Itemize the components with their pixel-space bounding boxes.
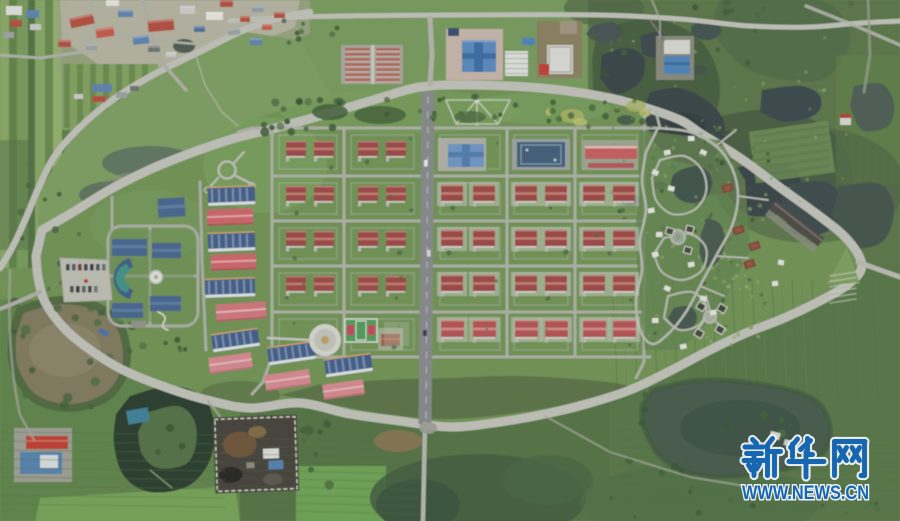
- svg-text:WWW.NEWS.CN: WWW.NEWS.CN: [742, 482, 869, 504]
